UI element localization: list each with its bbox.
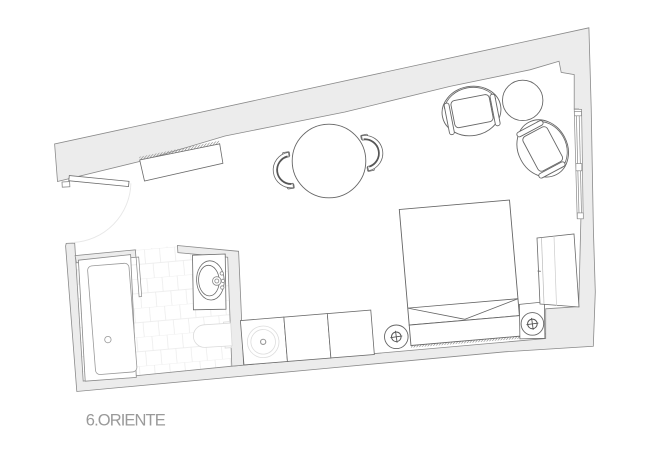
svg-text:6.ORIENTE: 6.ORIENTE [86,411,166,429]
